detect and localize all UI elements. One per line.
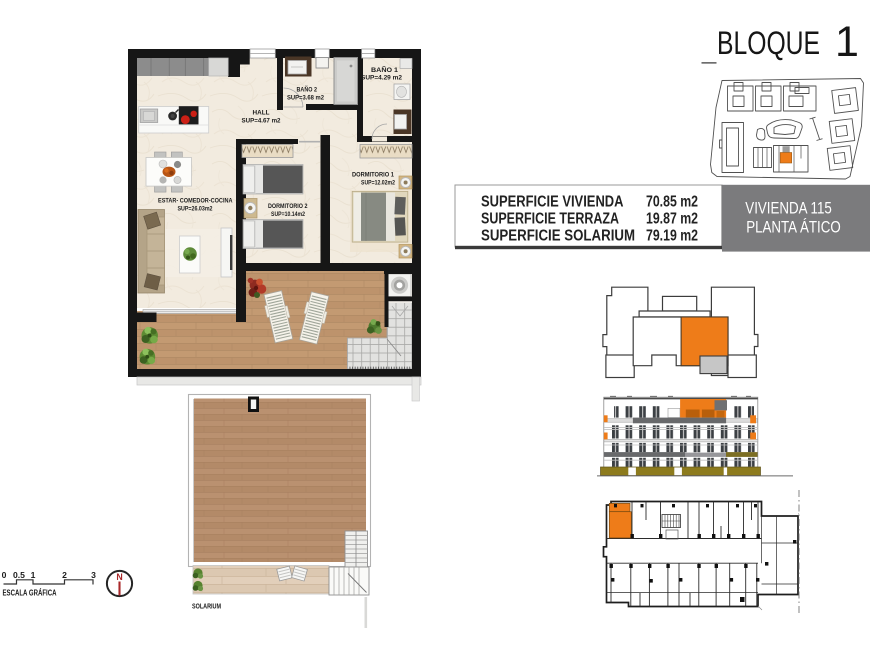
svg-text:SUPERFICIE TERRAZA: SUPERFICIE TERRAZA xyxy=(481,211,619,228)
svg-text:SUP=3.68 m2: SUP=3.68 m2 xyxy=(287,94,324,101)
svg-text:79.19 m2: 79.19 m2 xyxy=(646,227,698,244)
svg-text:SOLARIUM: SOLARIUM xyxy=(192,602,221,611)
svg-text:0: 0 xyxy=(2,570,7,580)
svg-text:VIVIENDA 115: VIVIENDA 115 xyxy=(745,198,832,217)
svg-text:SUP=10.14m2: SUP=10.14m2 xyxy=(271,211,305,218)
svg-text:SUP=4.29 m2: SUP=4.29 m2 xyxy=(361,75,402,82)
svg-text:SUPERFICIE SOLARIUM: SUPERFICIE SOLARIUM xyxy=(481,227,635,244)
svg-text:N: N xyxy=(116,572,122,582)
svg-text:ESCALA GRÁFICA: ESCALA GRÁFICA xyxy=(3,588,57,598)
svg-text:DORMITORIO 1: DORMITORIO 1 xyxy=(352,171,394,178)
svg-text:HALL: HALL xyxy=(253,110,270,117)
svg-text:PLANTA ÁTICO: PLANTA ÁTICO xyxy=(746,218,841,237)
svg-text:BLOQUE: BLOQUE xyxy=(717,25,820,61)
svg-text:SUP=12.02m2: SUP=12.02m2 xyxy=(361,179,395,186)
svg-text:SUPERFICIE VIVIENDA: SUPERFICIE VIVIENDA xyxy=(481,194,624,211)
svg-text:BAÑO 1: BAÑO 1 xyxy=(371,65,398,74)
svg-text:2: 2 xyxy=(62,570,67,580)
svg-text:1: 1 xyxy=(31,570,36,580)
svg-text:19.87 m2: 19.87 m2 xyxy=(646,211,698,228)
svg-text:BAÑO 2: BAÑO 2 xyxy=(297,85,318,94)
svg-text:DORMITORIO 2: DORMITORIO 2 xyxy=(268,203,308,210)
svg-text:ESTAR- COMEDOR-COCINA: ESTAR- COMEDOR-COCINA xyxy=(158,198,233,205)
svg-text:0.5: 0.5 xyxy=(13,570,25,580)
svg-text:SUP=4.67 m2: SUP=4.67 m2 xyxy=(242,118,281,125)
svg-text:70.85 m2: 70.85 m2 xyxy=(646,194,698,211)
svg-text:SUP=26.03m2: SUP=26.03m2 xyxy=(178,205,213,212)
svg-text:3: 3 xyxy=(91,570,96,580)
svg-text:1: 1 xyxy=(835,18,859,66)
